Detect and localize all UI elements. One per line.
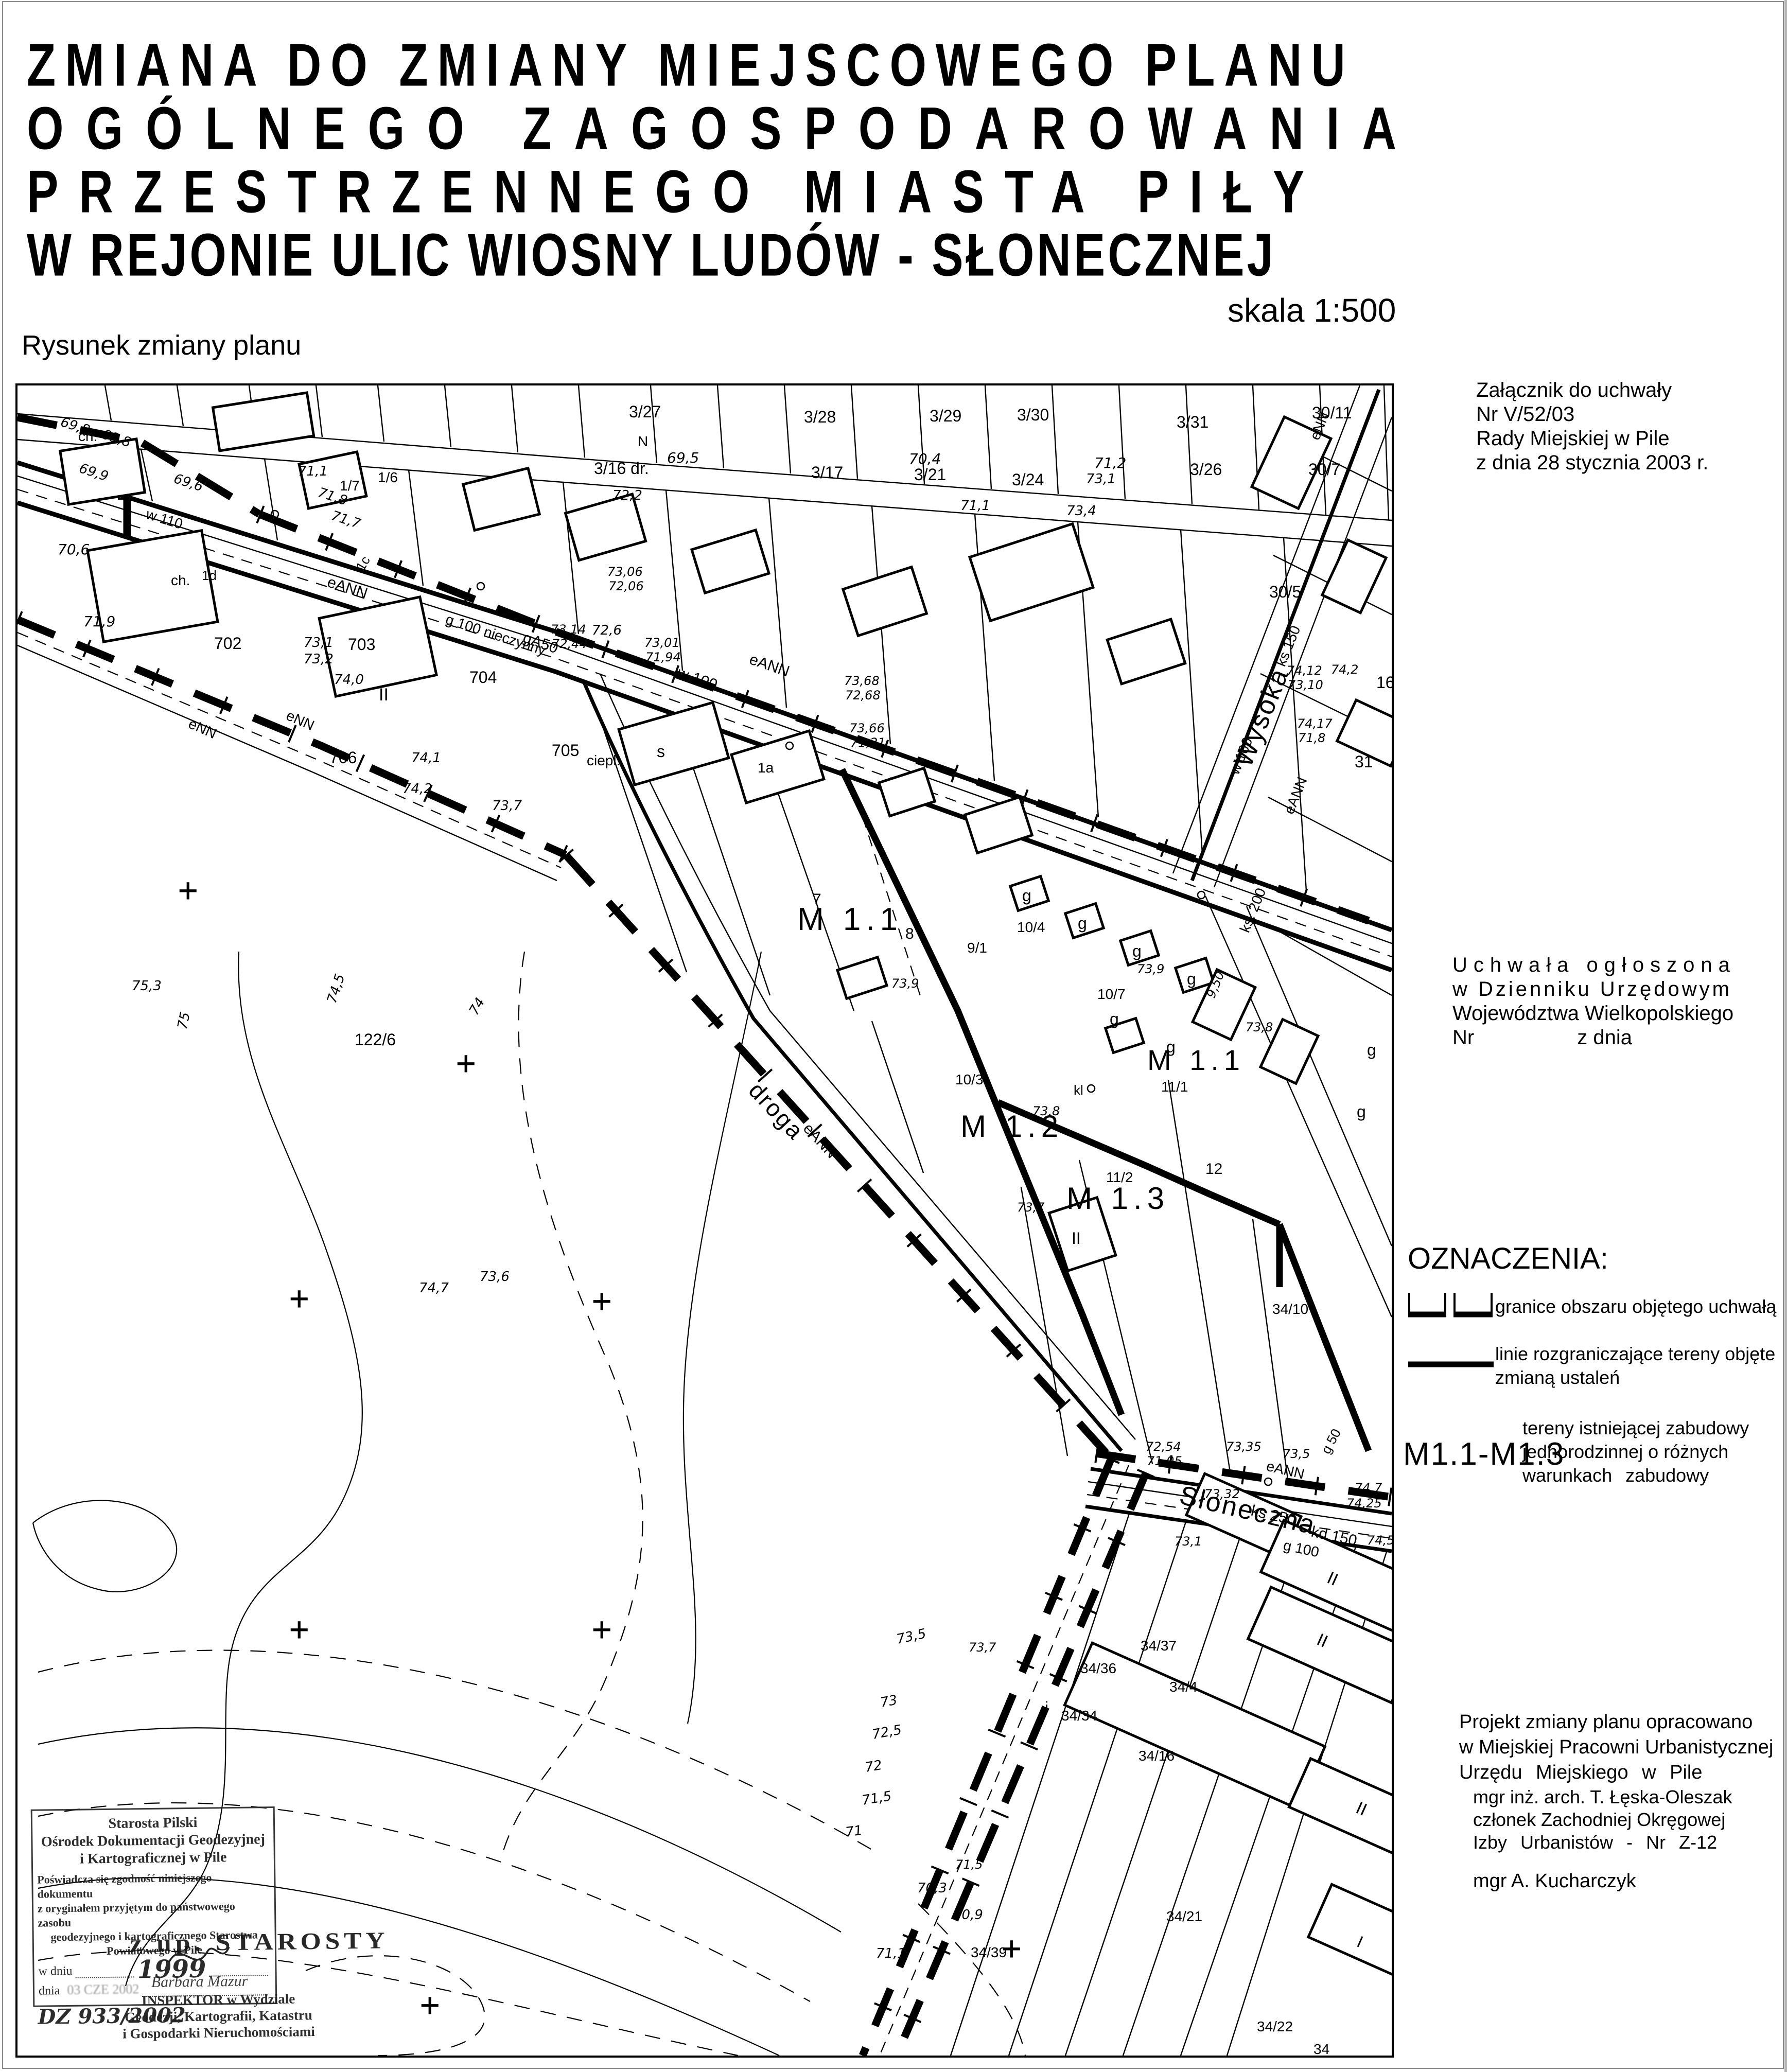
signature-title-block: INSPEKTOR w Wydziale Geodezji, Kartograf… xyxy=(110,1990,327,2042)
map-label: 34/22 xyxy=(1257,2018,1293,2034)
title-line-4-main: WIOSNY LUDÓW - SŁONECZNEJ xyxy=(468,222,1276,289)
map-label: 30/7 xyxy=(1308,460,1340,479)
title-line-4-prefix: W REJONIE ULIC xyxy=(27,222,468,289)
map-label: 703 xyxy=(348,635,375,654)
signature-scribble xyxy=(166,1936,234,1978)
map-label: 71,1 xyxy=(960,498,990,514)
map-label: g xyxy=(1357,1102,1366,1121)
map-label: 69,8 xyxy=(59,414,92,438)
map-label: 75,3 xyxy=(132,978,162,994)
map-label: 73,01 xyxy=(644,636,680,650)
title-line-1: ZMIANA DO ZMIANY MIEJSCOWEGO PLANU xyxy=(27,31,1416,100)
credits-line: w Miejskiej Pracowni Urbanistycznej xyxy=(1459,1735,1773,1760)
map-label: 73,7 xyxy=(1017,1200,1045,1215)
map-label: + xyxy=(1002,1929,1022,1968)
map-label: ciepl. xyxy=(587,752,620,768)
title-line-4: W REJONIE ULIC WIOSNY LUDÓW - SŁONECZNEJ xyxy=(27,221,1416,290)
map-label: w 100 xyxy=(675,664,720,694)
legend-item3-line1: tereny istniejącej zabudowy xyxy=(1522,1416,1749,1440)
map-label: g xyxy=(1187,970,1196,988)
map-label: 8 xyxy=(905,925,914,942)
map-label: 73,10 xyxy=(1288,678,1323,692)
map-label: eANN xyxy=(1265,1458,1306,1482)
map-label: M 1.1 xyxy=(1147,1044,1245,1076)
map-label: 122/6 xyxy=(355,1030,396,1049)
legend-heading: OZNACZENIA: xyxy=(1408,1241,1608,1276)
map-label: 34/37 xyxy=(1141,1638,1177,1654)
dnia-label: dnia xyxy=(39,1984,60,1998)
map-label: eNN xyxy=(186,715,219,742)
map-label: 73,68 xyxy=(844,674,880,688)
zdnia-label: z dnia xyxy=(1577,1026,1632,1050)
map-label: 71,7 xyxy=(329,508,363,532)
map-label: 72,68 xyxy=(845,688,881,703)
map-label: N xyxy=(638,433,648,449)
map-label: kl xyxy=(1074,1082,1083,1098)
map-label: 73,14 xyxy=(551,622,586,637)
map-label: 71,1 xyxy=(876,1946,906,1961)
map-label: 70,3 xyxy=(917,1881,947,1896)
map-label: 70,6 xyxy=(58,541,90,558)
map-label: M 1.3 xyxy=(1066,1181,1169,1216)
map-label: eANN xyxy=(747,651,792,680)
map-label: 31 xyxy=(1355,752,1373,771)
scanned-plan-page: { "page": { "title_l1": "ZMIANA DO ZMIAN… xyxy=(0,0,1787,2072)
drawing-caption: Rysunek zmiany planu xyxy=(22,329,301,361)
stamp-line: Poświadcza się zgodność niniejszego doku… xyxy=(37,1870,270,1902)
map-label: 74,12 xyxy=(1287,663,1322,678)
map-label: 16 xyxy=(1376,673,1392,692)
signature-name: Barbara Mazur xyxy=(151,1973,248,1991)
map-label: 71,5 xyxy=(955,1857,983,1872)
credits-line: Izby Urbanistów - Nr Z-12 xyxy=(1473,1831,1732,1854)
legend-item3-label: tereny istniejącej zabudowy jednorodzinn… xyxy=(1522,1416,1749,1487)
map-label: g xyxy=(1367,1041,1376,1059)
map-label: 34/4 xyxy=(1169,1679,1198,1695)
resolution-line: w Dzienniku Urzędowym xyxy=(1452,977,1772,1002)
nr-blank xyxy=(1474,1026,1577,1050)
credits-line: Projekt zmiany planu opracowano xyxy=(1459,1710,1773,1735)
map-label: 73,8 xyxy=(1246,1020,1273,1034)
map-label: 71,2 xyxy=(1094,454,1126,471)
droga-road xyxy=(584,674,1135,1451)
map-label: g 50 xyxy=(1318,1426,1344,1456)
signature-title-line: Geodezji, Kartografii, Katastru xyxy=(110,2007,326,2026)
credits-second-author: mgr A. Kucharczyk xyxy=(1473,1869,1636,1893)
title-line-2: OGÓLNEGO ZAGOSPODAROWANIA xyxy=(27,94,1416,164)
credits-line: mgr inż. arch. T. Łęska-Oleszak xyxy=(1473,1786,1732,1808)
map-label: 12 xyxy=(1205,1161,1222,1178)
map-label: + xyxy=(420,1986,440,2024)
resolution-note: Uchwała ogłoszona w Dzienniku Urzędowym … xyxy=(1452,953,1772,1050)
map-label: 73,2 xyxy=(304,652,334,667)
map-label: 3/29 xyxy=(930,407,961,425)
legend-boundary-symbol xyxy=(1406,1286,1496,1322)
plan-map-svg: M 1.1M 1.1M 1.2M 1.3WysokadrogaSłoneczna… xyxy=(17,385,1392,2056)
map-label: 71,1 xyxy=(298,464,328,479)
resolution-nr-row: Nr z dnia xyxy=(1452,1026,1772,1050)
map-label: 72,54 xyxy=(1146,1439,1181,1454)
map-label: 3/26 xyxy=(1190,460,1222,479)
stamp-line: z oryginałem przyjętym do państwowego za… xyxy=(38,1899,271,1930)
credits-line: członek Zachodniej Okręgowej xyxy=(1473,1808,1732,1831)
map-label: 74,5 xyxy=(324,972,348,1005)
annex-line: Rady Miejskiej w Pile xyxy=(1476,427,1708,451)
map-label: + xyxy=(592,1610,612,1648)
map-label: g xyxy=(1022,886,1031,905)
map-label: 30/5 xyxy=(1269,583,1301,601)
zone-dividing-lines xyxy=(842,769,1369,1451)
certification-stamp: Starosta Pilski Ośrodek Dokumentacji Geo… xyxy=(31,1805,353,2007)
annex-note: Załącznik do uchwały Nr V/52/03 Rady Mie… xyxy=(1476,378,1708,475)
document-title: ZMIANA DO ZMIANY MIEJSCOWEGO PLANU OGÓLN… xyxy=(27,31,1416,284)
map-label: 71,21 xyxy=(850,735,886,750)
map-label: 72,06 xyxy=(608,579,644,593)
map-label: g xyxy=(1078,914,1087,933)
map-label: 73,1 xyxy=(304,635,334,651)
map-label: 10/4 xyxy=(1017,919,1045,935)
map-label: 704 xyxy=(469,668,497,687)
map-label: 71,5 xyxy=(861,1788,892,1808)
scan-edge-artifact xyxy=(1784,0,1787,2072)
map-label: ks. 200 xyxy=(1237,886,1269,935)
map-label: 10/3 xyxy=(955,1072,984,1087)
legend-item2-line1: linie rozgraniczające tereny objęte xyxy=(1495,1342,1775,1366)
map-label: s xyxy=(657,742,665,761)
signature-title-line: INSPEKTOR w Wydziale xyxy=(110,1990,326,2009)
map-label: 3/27 xyxy=(629,402,661,421)
map-label: + xyxy=(289,1279,309,1318)
map-label: 74,0 xyxy=(334,672,364,688)
map-label: 7 xyxy=(813,891,821,908)
credits-author: mgr inż. arch. T. Łęska-Oleszak członek … xyxy=(1473,1786,1732,1854)
map-label: 72,5 xyxy=(871,1722,903,1743)
map-label: 34/36 xyxy=(1080,1660,1116,1676)
stamp-line: i Kartograficznej w Pile xyxy=(37,1848,270,1869)
resolution-line: Województwa Wielkopolskiego xyxy=(1452,1002,1772,1026)
map-label: + xyxy=(178,871,198,909)
map-label: + xyxy=(592,1282,612,1320)
legend-item1-label: granice obszaru objętego uchwałą xyxy=(1495,1295,1776,1319)
map-label: g xyxy=(1110,1010,1119,1028)
credits-workshop: Projekt zmiany planu opracowano w Miejsk… xyxy=(1459,1710,1773,1785)
map-label: 74,17 xyxy=(1297,716,1333,731)
plan-map: M 1.1M 1.1M 1.2M 1.3WysokadrogaSłoneczna… xyxy=(15,383,1394,2058)
map-label: 73 xyxy=(879,1693,899,1711)
map-label: 72 xyxy=(864,1758,883,1776)
stamp-line: Starosta Pilski xyxy=(37,1813,269,1834)
map-label: 705 xyxy=(552,741,579,760)
legend-item2-label: linie rozgraniczające tereny objęte zmia… xyxy=(1495,1342,1775,1390)
map-label: 73,06 xyxy=(607,565,643,579)
buildings xyxy=(60,393,1392,1989)
nr-label: Nr xyxy=(1452,1026,1474,1050)
map-label: 73,35 xyxy=(1226,1439,1262,1454)
annex-line: z dnia 28 stycznia 2003 r. xyxy=(1476,451,1708,475)
map-label: 73,1 xyxy=(1175,1534,1202,1549)
map-label: 74,7 xyxy=(419,1280,449,1296)
map-label: 73,6 xyxy=(480,1269,510,1285)
map-label: 70,9 xyxy=(953,1907,983,1923)
map-label: II xyxy=(379,685,389,705)
map-label: ch. xyxy=(171,572,190,588)
map-label: 73,5 xyxy=(895,1626,927,1647)
map-label: 3/17 xyxy=(811,463,843,482)
map-label: 71,94 xyxy=(645,650,681,664)
map-label: 702 xyxy=(214,634,241,653)
map-label: 73,4 xyxy=(1066,503,1096,519)
map-label: 71,8 xyxy=(1298,731,1325,745)
map-label: 75 xyxy=(175,1011,194,1031)
map-label: 69,5 xyxy=(667,449,699,466)
map-label: + xyxy=(289,1610,309,1648)
parcel-lines xyxy=(105,385,1392,2056)
map-label: 3/16 dr. xyxy=(594,459,649,478)
map-label: II xyxy=(1072,1229,1081,1248)
legend-item3-line2: jednorodzinnej o różnych xyxy=(1522,1440,1749,1464)
map-label: 34 xyxy=(1313,2041,1329,2056)
map-label: i xyxy=(1045,1698,1048,1717)
map-label: 71 xyxy=(845,1823,864,1840)
map-label: 74,7 xyxy=(1355,1481,1382,1495)
map-label: 72,6 xyxy=(592,623,622,638)
legend-item2-line2: zmianą ustaleń xyxy=(1495,1366,1775,1390)
legend-line-symbol xyxy=(1406,1357,1496,1372)
map-label: 34/10 xyxy=(1272,1301,1308,1317)
map-label: 34/21 xyxy=(1166,1908,1202,1924)
w-dniu-label: w dniu xyxy=(38,1964,72,1979)
stamp-line: Ośrodek Dokumentacji Geodezyjnej xyxy=(37,1831,269,1851)
map-label: eANN xyxy=(325,573,370,602)
map-label: g xyxy=(1166,1038,1176,1056)
map-label: 71,9 xyxy=(83,613,115,630)
map-label: 74 xyxy=(466,995,488,1018)
map-label: 73,9 xyxy=(1137,962,1164,976)
map-label: 73,8 xyxy=(1032,1104,1060,1118)
map-label: 3/30 xyxy=(1017,406,1049,424)
map-label: + xyxy=(456,1044,476,1082)
map-label: 3/21 xyxy=(914,465,946,484)
map-label: 1/7 xyxy=(340,478,360,494)
map-label: eANN xyxy=(1281,775,1310,816)
map-label: 74,1 xyxy=(411,750,441,766)
map-label: 34/16 xyxy=(1138,1748,1175,1764)
map-label: 73,5 xyxy=(1283,1447,1310,1461)
map-label: 3/24 xyxy=(1012,470,1044,489)
map-label: 10/7 xyxy=(1097,986,1126,1002)
map-label: 706 xyxy=(329,748,357,767)
map-label: 73,7 xyxy=(492,798,522,814)
map-label: 73,9 xyxy=(891,976,919,991)
map-label: 30/11 xyxy=(1312,403,1352,422)
dotted-line xyxy=(75,1966,134,1978)
map-label: 74,2 xyxy=(1331,662,1358,677)
map-label: 3/28 xyxy=(804,408,836,426)
map-label: 73,66 xyxy=(849,721,885,735)
map-label: 1d xyxy=(202,568,217,583)
map-label: 73,32 xyxy=(1204,1487,1240,1501)
map-label: 74,2 xyxy=(402,781,432,797)
map-label: 1a xyxy=(758,760,774,776)
map-label: 1/6 xyxy=(378,469,398,485)
map-label: 74,50 xyxy=(1367,1533,1392,1548)
map-label: 72,44 xyxy=(552,637,587,651)
legend-item3-line3: warunkach zabudowy xyxy=(1522,1464,1749,1487)
map-label: 70,4 xyxy=(909,450,941,467)
annex-line: Załącznik do uchwały xyxy=(1476,378,1708,402)
map-label: 11/1 xyxy=(1161,1079,1188,1095)
map-label: 72,2 xyxy=(612,488,642,503)
credits-line: Urzędu Miejskiego w Pile xyxy=(1459,1760,1773,1785)
map-label: 71,05 xyxy=(1147,1454,1182,1468)
map-label: 3/31 xyxy=(1177,413,1208,431)
map-label: 74,25 xyxy=(1346,1496,1382,1511)
map-label: 9/1 xyxy=(967,940,987,956)
map-label: 73,1 xyxy=(1086,471,1116,487)
map-label: g xyxy=(1132,942,1142,960)
annex-line: Nr V/52/03 xyxy=(1476,402,1708,427)
map-label: 34/34 xyxy=(1061,1708,1097,1724)
map-label: 73,7 xyxy=(969,1640,996,1655)
signature-title-line: i Gospodarki Nieruchomościami xyxy=(111,2023,327,2042)
map-label: 11/2 xyxy=(1106,1169,1133,1185)
title-line-3: PRZESTRZENNEGO MIASTA PIŁY xyxy=(27,157,1416,227)
scale-label: skala 1:500 xyxy=(1228,291,1396,329)
resolution-line: Uchwała ogłoszona xyxy=(1452,953,1772,977)
